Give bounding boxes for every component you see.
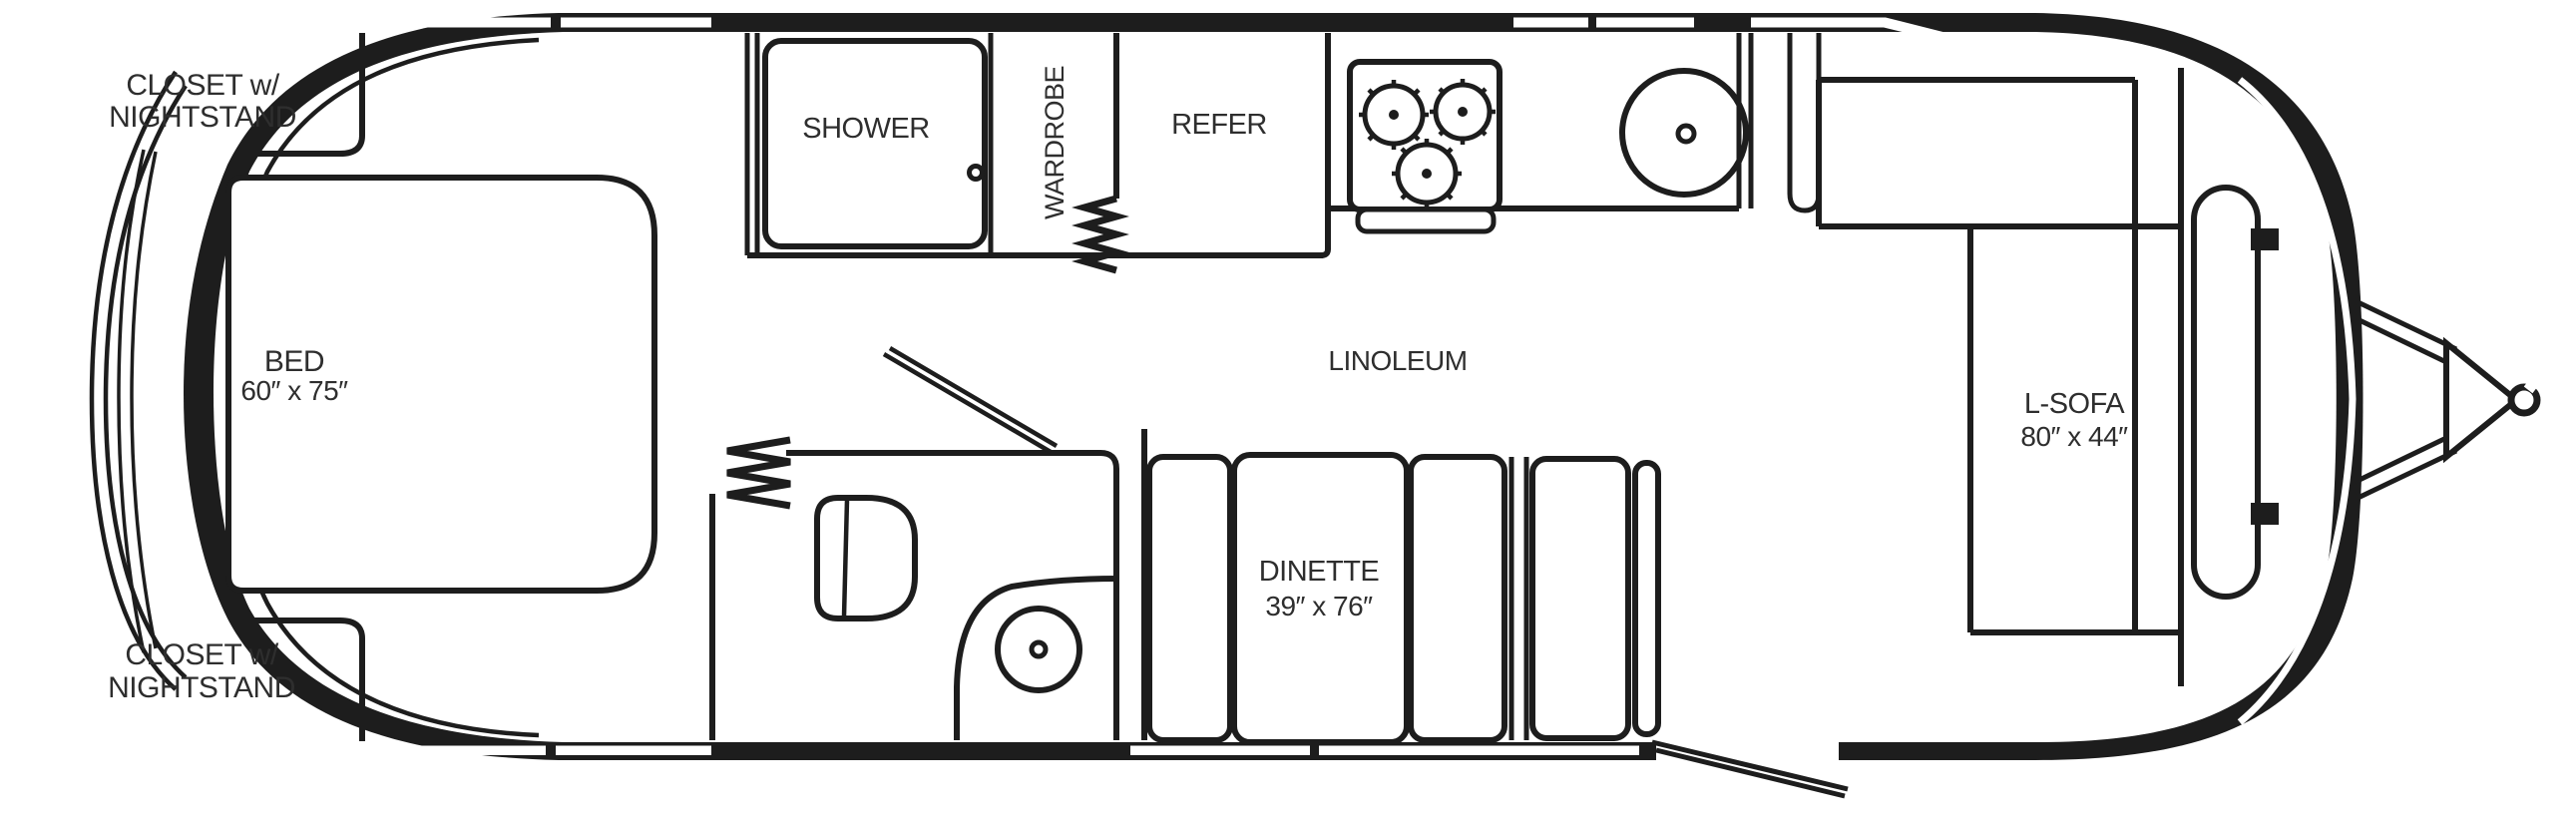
l-sofa-label: L-SOFA (2024, 388, 2125, 420)
burner-icon-1 (1359, 80, 1429, 150)
bed-dimensions: 60″ x 75″ (240, 375, 348, 406)
spare-carrier-line-inner (132, 152, 156, 648)
l-sofa-dimensions: 80″ x 44″ (2020, 421, 2128, 452)
window-dinette-bottom-2 (1319, 746, 1639, 756)
window-bedroom-bottom-1 (396, 746, 546, 756)
stove-drawer (1358, 209, 1494, 231)
burner-3-hub (1422, 169, 1432, 179)
closet-bottom-label-line1: CLOSET w/ (125, 638, 278, 671)
window-kitchen-top-2 (1596, 18, 1694, 28)
shower-label: SHOWER (802, 113, 930, 145)
wardrobe-label: WARDROBE (1040, 66, 1070, 219)
dinette-end-shell (1635, 463, 1658, 734)
front-shelf-mount-bottom (2251, 503, 2279, 525)
kitchen-sink-drain (1678, 126, 1694, 142)
dinette-end-cabinet (1532, 459, 1628, 738)
shower-door-knob (970, 167, 983, 180)
rear-bumper (92, 72, 186, 689)
dinette-label: DINETTE (1259, 556, 1380, 588)
burner-1-hub (1389, 110, 1399, 120)
coupler-triangle (2446, 343, 2514, 457)
bed-label: BED (264, 345, 324, 378)
linoleum-label: LINOLEUM (1328, 345, 1467, 376)
floor-plan-drawing: CLOSET w/ NIGHTSTAND CLOSET w/ NIGHTSTAN… (0, 0, 2576, 824)
window-dinette-bottom-1 (1130, 746, 1310, 756)
lavatory-sink-drain (1032, 642, 1046, 656)
window-bedroom-bottom-2 (556, 746, 711, 756)
floor-plan-page: CLOSET w/ NIGHTSTAND CLOSET w/ NIGHTSTAN… (0, 0, 2576, 824)
window-kitchen-top-1 (1513, 18, 1588, 28)
window-bedroom-top-1 (399, 18, 551, 28)
front-shelf (2194, 188, 2258, 597)
burner-2-hub (1458, 107, 1468, 117)
burner-icon-3 (1392, 139, 1462, 208)
closet-top-label-line2: NIGHTSTAND (109, 101, 296, 134)
closet-top-label-line1: CLOSET w/ (126, 69, 279, 102)
dinette-bench-left (1149, 457, 1230, 740)
dinette: DINETTE 39″ x 76″ (1149, 455, 1658, 742)
dinette-bench-right (1411, 457, 1504, 740)
refer-label: REFER (1171, 109, 1267, 141)
window-bedroom-top-2 (561, 18, 711, 28)
toilet-tank-line (844, 500, 847, 617)
dinette-dimensions: 39″ x 76″ (1265, 591, 1373, 621)
closet-bottom-label-line2: NIGHTSTAND (108, 671, 295, 704)
toilet (817, 498, 915, 618)
front-shelf-mount-top (2251, 228, 2279, 250)
